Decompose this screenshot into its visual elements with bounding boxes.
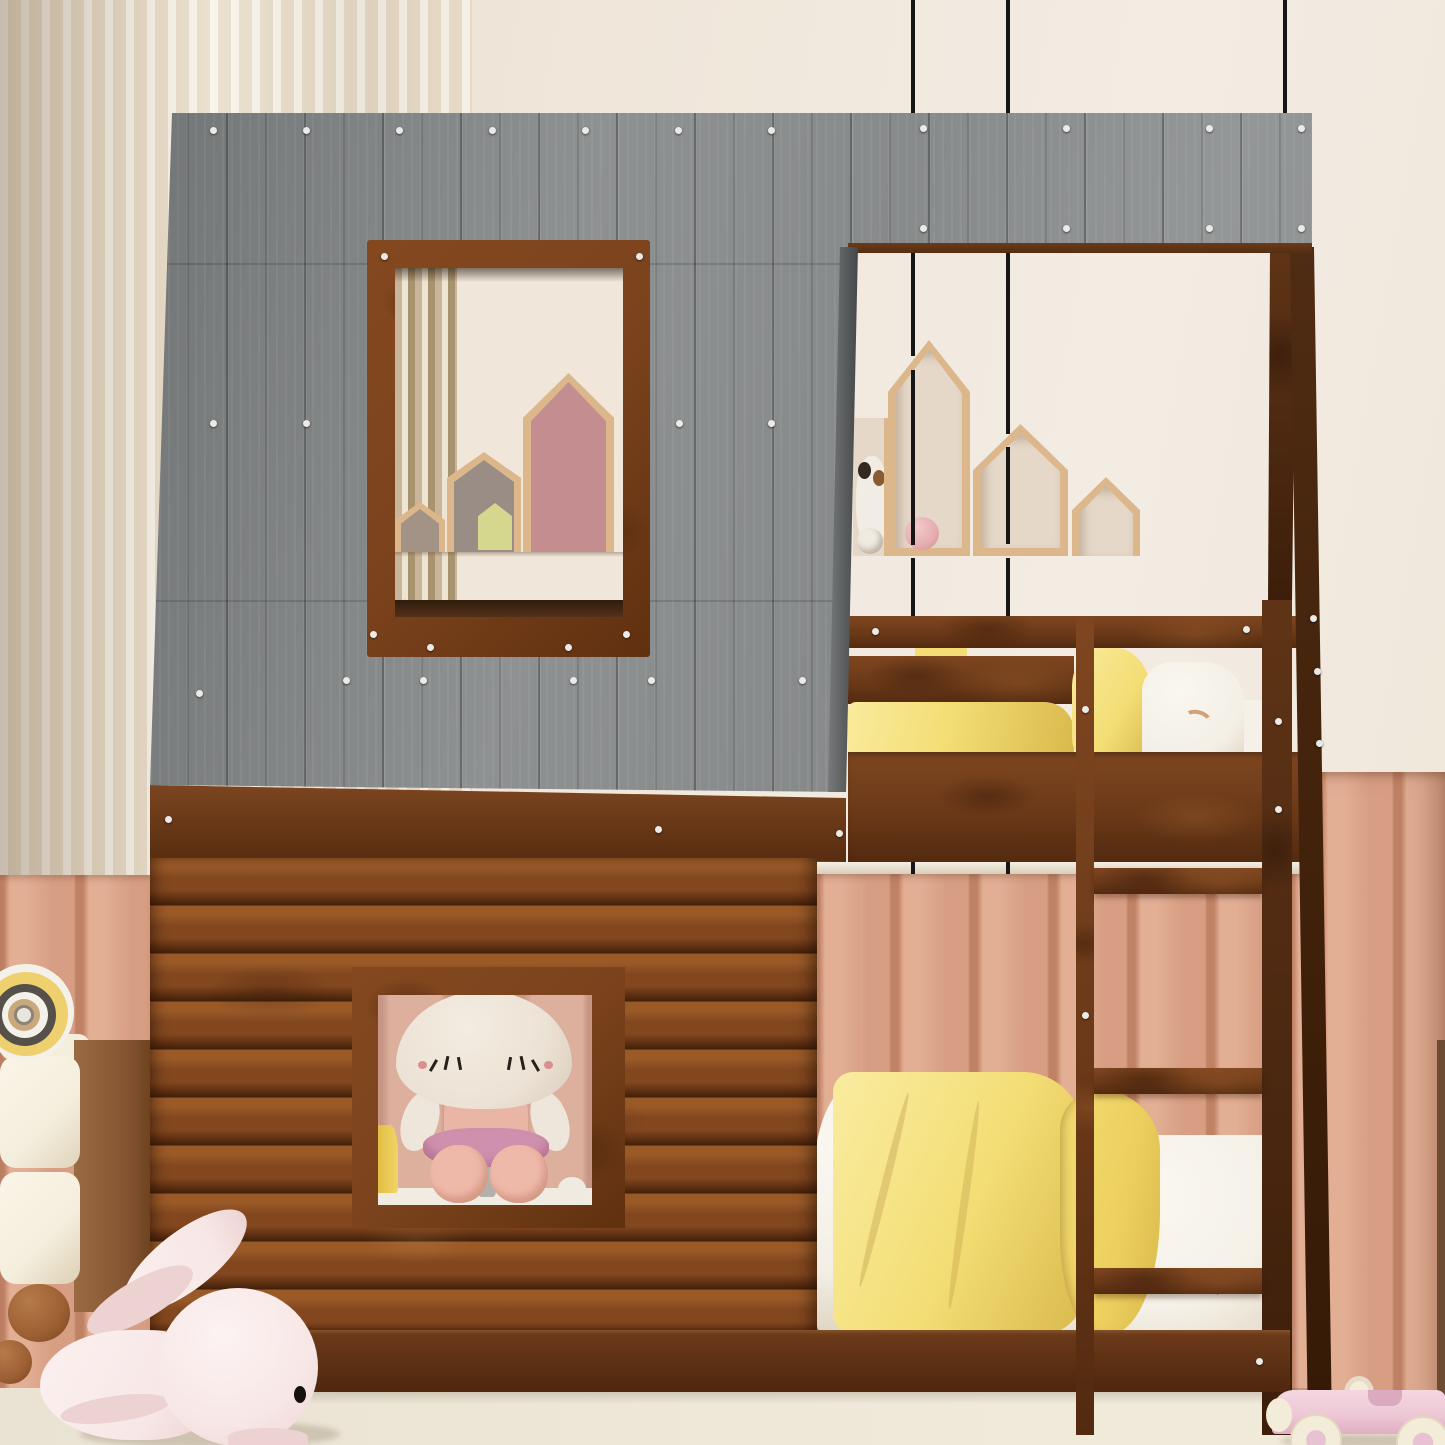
base-plinth bbox=[150, 1330, 1290, 1392]
cabinet-ball-foot bbox=[8, 1284, 70, 1342]
screw bbox=[1206, 125, 1213, 132]
window-inner-sill bbox=[395, 600, 623, 617]
cable-mid-wall bbox=[1006, 252, 1010, 434]
facade-bottom-board bbox=[150, 785, 848, 863]
cable-mid-low bbox=[1006, 558, 1010, 616]
screw bbox=[1256, 1358, 1263, 1365]
window-shelf-house-large bbox=[523, 373, 614, 552]
ladder-left-rail bbox=[1076, 616, 1094, 1435]
yellow-toy-glimpse bbox=[378, 1125, 398, 1193]
cable-left-through-shelf bbox=[911, 370, 915, 545]
screw bbox=[396, 127, 403, 134]
cable-left-low bbox=[911, 558, 915, 616]
slat-wall-through-window bbox=[395, 268, 457, 617]
window-shelf-house-medium bbox=[447, 452, 521, 552]
screw bbox=[1243, 626, 1250, 633]
screw bbox=[582, 127, 589, 134]
bunny-head bbox=[158, 1288, 318, 1445]
car-cockpit-notch bbox=[1368, 1390, 1402, 1406]
shelf-house-small bbox=[1072, 477, 1140, 556]
screw bbox=[1275, 718, 1282, 725]
bunny-foot bbox=[228, 1428, 308, 1445]
wainscot-right bbox=[1318, 772, 1445, 1428]
screw bbox=[343, 677, 350, 684]
screw bbox=[920, 125, 927, 132]
screw bbox=[427, 644, 434, 651]
screw bbox=[920, 225, 927, 232]
screw bbox=[370, 631, 377, 638]
screw bbox=[636, 253, 643, 260]
screw bbox=[303, 127, 310, 134]
doll-mushroom-cap bbox=[396, 995, 572, 1109]
upper-bunk-guardrail bbox=[848, 656, 1074, 704]
doll-blush-left bbox=[418, 1061, 427, 1069]
screw bbox=[210, 127, 217, 134]
cable-left-cap-bit bbox=[911, 862, 915, 874]
screw bbox=[648, 677, 655, 684]
shelf-house-medium bbox=[973, 424, 1068, 556]
shelf-house-tall bbox=[888, 340, 970, 556]
cabinet-drawer-top bbox=[0, 1056, 80, 1168]
shelf-shadow-line bbox=[395, 552, 623, 557]
bed-corner-post bbox=[1262, 600, 1292, 1435]
screw bbox=[1082, 1012, 1089, 1019]
screw bbox=[1063, 225, 1070, 232]
shelf-house-partial bbox=[853, 418, 892, 556]
screw bbox=[676, 420, 683, 427]
window-inner-shadow bbox=[395, 268, 623, 282]
cabinet-drawer-bottom bbox=[0, 1172, 80, 1284]
ladder-rung-2 bbox=[1094, 1068, 1262, 1094]
screw bbox=[768, 420, 775, 427]
screw bbox=[489, 127, 496, 134]
screw bbox=[872, 628, 879, 635]
screw bbox=[1298, 225, 1305, 232]
car-nose bbox=[1266, 1398, 1292, 1432]
screw bbox=[565, 644, 572, 651]
lower-bunk-blanket-fold bbox=[1060, 1090, 1160, 1334]
cable-right-upper bbox=[1283, 0, 1287, 113]
cable-left-upper bbox=[911, 0, 915, 113]
screw bbox=[381, 253, 388, 260]
plush-dark-patch bbox=[858, 462, 871, 479]
right-edge-panel bbox=[1437, 1040, 1445, 1445]
white-ball bbox=[857, 528, 883, 554]
screw bbox=[303, 420, 310, 427]
screw bbox=[420, 677, 427, 684]
screw bbox=[1275, 806, 1282, 813]
screw bbox=[768, 127, 775, 134]
screw bbox=[1063, 125, 1070, 132]
screw bbox=[1316, 740, 1323, 747]
screw bbox=[675, 127, 682, 134]
cable-mid-upper bbox=[1006, 0, 1010, 113]
screw bbox=[836, 830, 843, 837]
upper-bunk-white-pillow bbox=[1142, 662, 1244, 760]
screw bbox=[1314, 668, 1321, 675]
doll-blush-right bbox=[544, 1061, 553, 1069]
cable-mid-through-shelf bbox=[1006, 447, 1010, 544]
screw bbox=[1298, 125, 1305, 132]
doll-leg-right bbox=[490, 1145, 548, 1203]
screw bbox=[799, 677, 806, 684]
screw bbox=[165, 816, 172, 823]
lower-bunk-yellow-blanket bbox=[833, 1072, 1083, 1334]
upper-window-opening bbox=[395, 268, 623, 617]
screw bbox=[1082, 706, 1089, 713]
window-shelf-house-small bbox=[395, 502, 445, 552]
screw bbox=[623, 631, 630, 638]
rainbow-print bbox=[1180, 707, 1214, 736]
screw bbox=[1206, 225, 1213, 232]
screw bbox=[655, 826, 662, 833]
roof-eave-fascia bbox=[848, 243, 1312, 253]
screw bbox=[570, 677, 577, 684]
kids-room-bunkbed-photo bbox=[0, 0, 1445, 1445]
ladder-rung-3 bbox=[1094, 1268, 1262, 1294]
cable-mid-cap-bit bbox=[1006, 862, 1010, 874]
ring-toy-center bbox=[14, 1005, 34, 1025]
lower-window-opening bbox=[378, 995, 592, 1205]
screw bbox=[1310, 615, 1317, 622]
screw bbox=[210, 420, 217, 427]
ladder-rung-1 bbox=[1094, 868, 1262, 894]
screw bbox=[196, 690, 203, 697]
bunny-eye bbox=[294, 1386, 306, 1403]
doll-leg-left bbox=[430, 1145, 488, 1203]
white-ball-glimpse bbox=[558, 1177, 586, 1201]
